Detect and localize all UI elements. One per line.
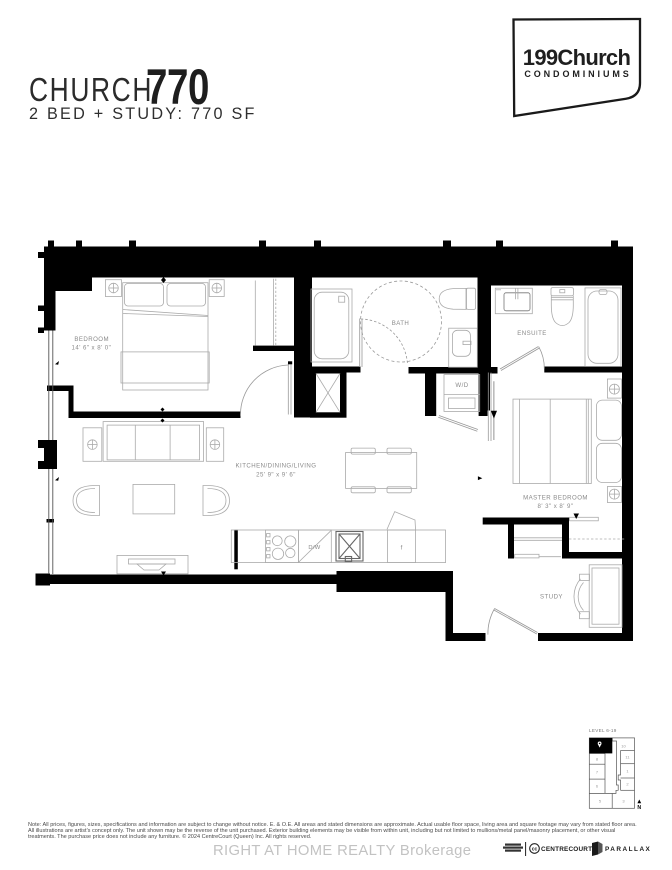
svg-text:25' 9" x 9' 6": 25' 9" x 9' 6" bbox=[256, 472, 296, 479]
svg-text:STUDY: STUDY bbox=[540, 594, 563, 601]
svg-text:BEDROOM: BEDROOM bbox=[74, 336, 109, 343]
svg-text:N: N bbox=[637, 805, 641, 811]
svg-text:MASTER BEDROOM: MASTER BEDROOM bbox=[523, 495, 588, 502]
svg-text:11: 11 bbox=[625, 755, 630, 760]
svg-text:W/D: W/D bbox=[455, 382, 468, 389]
svg-text:LEVEL 6-19: LEVEL 6-19 bbox=[589, 728, 617, 733]
svg-text:3: 3 bbox=[622, 799, 625, 804]
svg-text:f: f bbox=[401, 546, 403, 552]
svg-text:ENSUITE: ENSUITE bbox=[517, 330, 547, 337]
svg-text:14' 6" x 8' 0": 14' 6" x 8' 0" bbox=[72, 345, 112, 352]
svg-text:8: 8 bbox=[596, 757, 599, 762]
svg-text:8' 3" x 8' 9": 8' 3" x 8' 9" bbox=[538, 503, 574, 510]
svg-text:PARALLAX: PARALLAX bbox=[605, 846, 651, 853]
svg-text:CENTRECOURT: CENTRECOURT bbox=[541, 846, 592, 853]
svg-text:7: 7 bbox=[596, 770, 599, 775]
svg-text:cc: cc bbox=[532, 847, 538, 853]
svg-text:6: 6 bbox=[596, 784, 599, 789]
svg-text:5: 5 bbox=[599, 799, 602, 804]
svg-text:10: 10 bbox=[621, 744, 626, 749]
svg-text:D/W: D/W bbox=[308, 545, 320, 551]
svg-text:BATH: BATH bbox=[392, 320, 410, 327]
svg-text:1: 1 bbox=[626, 769, 629, 774]
svg-text:KITCHEN/DINING/LIVING: KITCHEN/DINING/LIVING bbox=[236, 463, 317, 470]
svg-text:2: 2 bbox=[626, 782, 629, 787]
